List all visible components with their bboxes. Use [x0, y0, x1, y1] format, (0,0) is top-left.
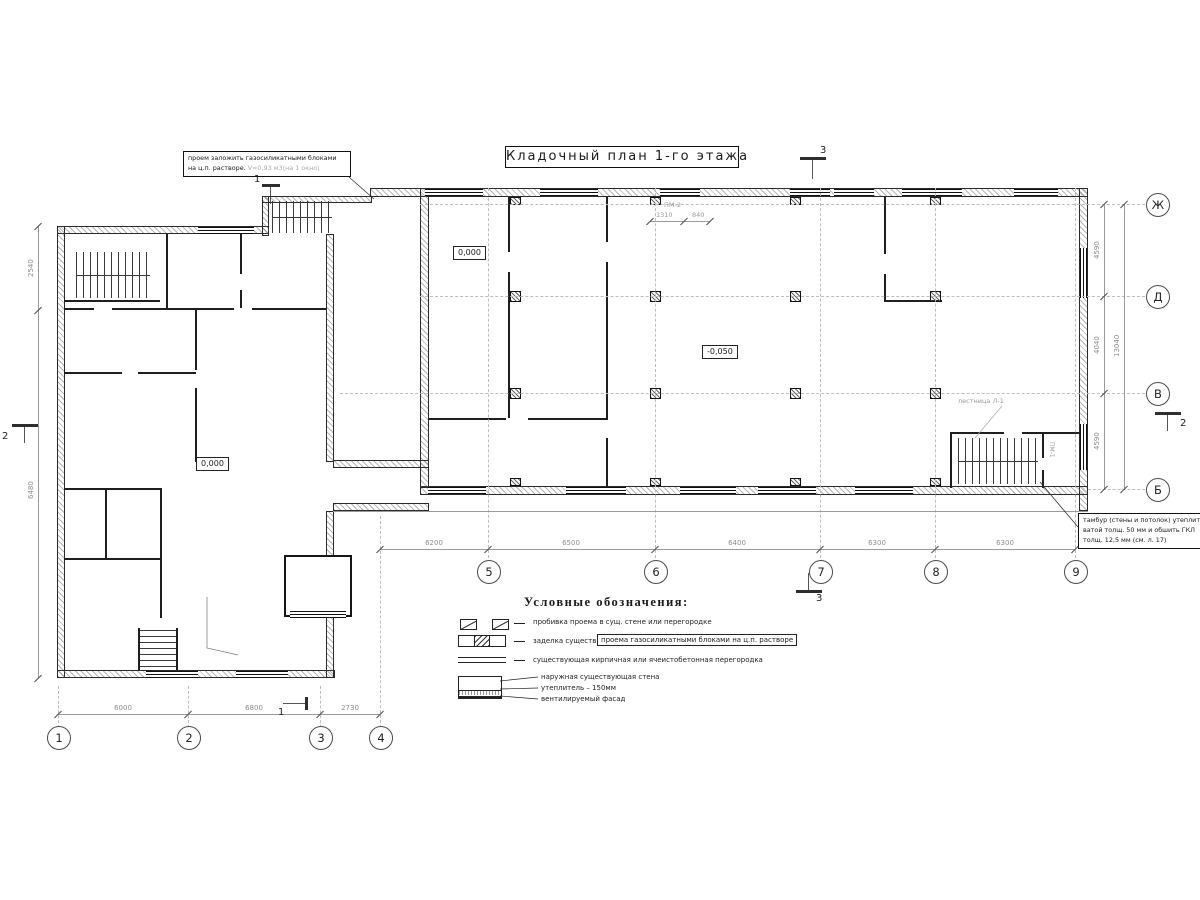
door-label-pm2: ПМ-2	[664, 202, 681, 209]
legend-dash-1	[514, 623, 525, 624]
elevation-mark-left-wing: 0,000	[196, 457, 229, 471]
window	[566, 487, 626, 494]
legend-infill-cell	[459, 636, 475, 646]
opening-note-line1: проем заложить газосиликатными блоками	[188, 154, 346, 164]
stair-tread	[140, 660, 176, 661]
legend-symbol-wall-section	[458, 676, 502, 699]
section-2-right-stem	[1167, 415, 1168, 431]
stair-landing-line	[272, 217, 332, 218]
partition	[64, 300, 160, 302]
tambour-note-line2: ватой толщ. 50 мм и обшить ГКЛ	[1083, 526, 1200, 536]
legend-heading: Условные обозначения:	[524, 595, 689, 610]
legend-symbol-partition	[458, 657, 506, 663]
window	[1080, 248, 1087, 298]
window	[540, 189, 598, 196]
partition	[428, 418, 506, 420]
partition	[138, 628, 140, 670]
dimension-line	[333, 511, 1088, 512]
pilaster	[510, 478, 521, 486]
tambour-note: тамбур (стены и потолок) утеплить ватой …	[1078, 513, 1200, 549]
stair-landing-line	[76, 275, 150, 276]
dim-2540: 2540	[28, 246, 35, 290]
stair-tread	[140, 648, 176, 649]
dim-6200: 6200	[412, 540, 456, 547]
window	[198, 227, 254, 234]
wall-long-bottom	[420, 486, 1088, 495]
legend-wall-line3: вентилируемый фасад	[541, 695, 625, 703]
legend-text-3: существующая кирпичная или ячеистобетонн…	[533, 656, 763, 664]
dim-6300-a: 6300	[855, 540, 899, 547]
section-2-left-label: 2	[2, 432, 8, 442]
section-1-top-label: 1	[254, 175, 260, 185]
legend-facade-strip	[459, 696, 501, 698]
partition	[64, 488, 162, 490]
legend-infill-cell	[490, 636, 505, 646]
window	[1080, 424, 1087, 470]
dimension-line	[650, 221, 710, 222]
dimension-line	[58, 714, 380, 715]
axis-circle-2: 2	[177, 726, 201, 750]
tambour-note-line1: тамбур (стены и потолок) утеплить	[1083, 516, 1200, 526]
partition	[1042, 434, 1044, 458]
window	[146, 671, 198, 678]
opening-note: проем заложить газосиликатными блоками н…	[183, 151, 351, 177]
axis-circle-d: Д	[1146, 285, 1170, 309]
axis-circle-7: 7	[809, 560, 833, 584]
stair-label: лестница Л-1	[958, 398, 1004, 405]
partition	[528, 418, 608, 420]
window	[428, 487, 486, 494]
dim-6500: 6500	[549, 540, 593, 547]
window	[660, 189, 700, 196]
partition	[508, 197, 510, 252]
window	[425, 189, 483, 196]
legend-symbol-infill	[458, 635, 506, 647]
stair-landing-line	[958, 461, 1038, 462]
dim-4040: 4040	[1094, 323, 1101, 367]
axis-circle-8: 8	[924, 560, 948, 584]
wall-left-west	[57, 226, 65, 678]
dim-6400: 6400	[715, 540, 759, 547]
axis-circle-v: В	[1146, 382, 1170, 406]
partition	[64, 308, 94, 310]
section-2-right-label: 2	[1180, 419, 1186, 429]
section-2-left-bar	[12, 424, 38, 427]
axis-circle-zh: Ж	[1146, 193, 1170, 217]
legend-text-1: пробивка проема в сущ. стене или перегор…	[533, 618, 712, 626]
axis-circle-1: 1	[47, 726, 71, 750]
stair-tread	[140, 666, 176, 667]
grid-centerline-v	[1075, 188, 1076, 563]
grid-centerline-v	[58, 686, 59, 728]
stair-tread	[140, 642, 176, 643]
legend-infill-cell-hatched	[475, 636, 491, 646]
partition	[64, 558, 162, 560]
stair-tread	[140, 630, 176, 631]
legend-text-2-boxed: проема газосиликатными блоками на ц.п. р…	[597, 634, 797, 646]
dim-2730: 2730	[328, 705, 372, 712]
wall-left-east-c	[326, 617, 334, 678]
partition	[160, 488, 162, 618]
legend-insulation-strip	[459, 690, 501, 695]
partition	[606, 262, 608, 420]
section-1-bottom-bar	[305, 697, 308, 710]
section-2-left-stem	[24, 427, 25, 443]
wall-connector-bottom	[333, 503, 429, 511]
leader-legend-facade	[500, 696, 538, 699]
pilaster	[790, 478, 801, 486]
partition	[606, 438, 608, 488]
dim-6300-b: 6300	[983, 540, 1027, 547]
door-dim-1310: 1310	[656, 212, 673, 219]
partition	[195, 388, 197, 462]
axis-circle-3: 3	[309, 726, 333, 750]
dim-6000: 6000	[101, 705, 145, 712]
partition	[884, 197, 886, 254]
window	[902, 189, 962, 196]
leader-lines	[0, 0, 1200, 900]
wall-left-east-b	[326, 511, 334, 557]
wall-annex-left	[262, 196, 269, 236]
window	[758, 487, 816, 494]
partition	[950, 432, 1004, 434]
section-1-top-bar	[262, 184, 280, 187]
wall-connector-top	[333, 460, 429, 468]
window	[1014, 189, 1058, 196]
dim-4590-top: 4590	[1094, 228, 1101, 272]
grid-centerline-h	[1088, 489, 1150, 490]
partition	[240, 234, 242, 274]
section-1-bottom-stem	[283, 703, 307, 704]
section-1-bottom-label: 1	[278, 708, 284, 718]
partition	[64, 372, 122, 374]
stair-tread	[140, 636, 176, 637]
partition	[1022, 432, 1080, 434]
grid-centerline-v	[655, 188, 656, 563]
tambour-note-line3: толщ. 12,5 мм (см. л. 17)	[1083, 536, 1200, 546]
partition	[166, 234, 168, 308]
legend-wall-line1: наружная существующая стена	[541, 673, 659, 681]
grid-centerline-v	[488, 188, 489, 563]
stair-tread	[140, 654, 176, 655]
wall-left-east-a	[326, 234, 334, 462]
legend-text-2: заделка существ.	[533, 637, 599, 645]
window	[236, 671, 288, 678]
axis-circle-b: Б	[1146, 478, 1170, 502]
window	[790, 189, 830, 196]
wall-long-left	[420, 188, 429, 488]
window	[855, 487, 913, 494]
elevation-mark-entry: 0,000	[453, 246, 486, 260]
axis-circle-9: 9	[1064, 560, 1088, 584]
dim-4590-bot: 4590	[1094, 419, 1101, 463]
partition	[105, 490, 107, 558]
partition	[112, 308, 234, 310]
partition	[1042, 470, 1044, 488]
grid-centerline-v	[820, 188, 821, 563]
partition	[240, 290, 242, 308]
axis-circle-5: 5	[477, 560, 501, 584]
axis-circle-4: 4	[369, 726, 393, 750]
door-dim-840: 840	[692, 212, 704, 219]
grid-centerline-h	[420, 296, 1150, 297]
door-label-pm1: ПМ-1	[1048, 442, 1054, 458]
section-2-right-bar	[1155, 412, 1181, 415]
partition	[884, 274, 886, 302]
section-3-top-label: 3	[820, 146, 826, 156]
dimension-line	[380, 549, 1075, 550]
partition	[252, 308, 326, 310]
bay-window	[284, 555, 352, 617]
partition	[138, 372, 196, 374]
dim-13040-total: 13040	[1114, 324, 1121, 368]
legend-symbol-opening-b	[492, 619, 509, 630]
partition	[176, 628, 178, 670]
section-3-bottom-label: 3	[816, 594, 822, 604]
legend-wall-line2: утеплитель – 150мм	[541, 684, 616, 692]
grid-centerline-v	[320, 686, 321, 728]
leader-left-wing	[207, 597, 238, 655]
window	[290, 611, 346, 618]
window	[834, 189, 874, 196]
opening-note-volume: V=0,93 м3(на 1 окно)	[248, 164, 320, 172]
grid-centerline-v	[935, 188, 936, 563]
elevation-mark-hall: -0,050	[702, 345, 738, 359]
legend-dash-3	[514, 660, 525, 661]
window	[680, 487, 736, 494]
dim-6480: 6480	[28, 468, 35, 512]
grid-centerline-h	[420, 204, 1150, 205]
dim-6800: 6800	[232, 705, 276, 712]
section-3-top-bar	[800, 157, 826, 160]
drawing-title: Кладочный план 1-го этажа	[505, 146, 739, 168]
dimension-line	[1124, 204, 1125, 490]
dimension-line	[38, 226, 39, 678]
partition	[950, 434, 952, 488]
legend-dash-2	[514, 641, 525, 642]
grid-centerline-h	[340, 393, 1150, 394]
axis-circle-6: 6	[644, 560, 668, 584]
leader-legend-insulation	[500, 688, 538, 689]
floor-plan-canvas: Кладочный план 1-го этажа проем заложить…	[0, 0, 1200, 900]
grid-centerline-v	[188, 686, 189, 728]
dimension-line	[1104, 204, 1105, 490]
partition	[195, 310, 197, 370]
section-3-top-stem	[812, 160, 813, 179]
leader-legend-wall	[500, 677, 538, 681]
legend-symbol-opening-a	[460, 619, 477, 630]
opening-note-line2: на ц.п. растворе. V=0,93 м3(на 1 окно)	[188, 164, 346, 174]
